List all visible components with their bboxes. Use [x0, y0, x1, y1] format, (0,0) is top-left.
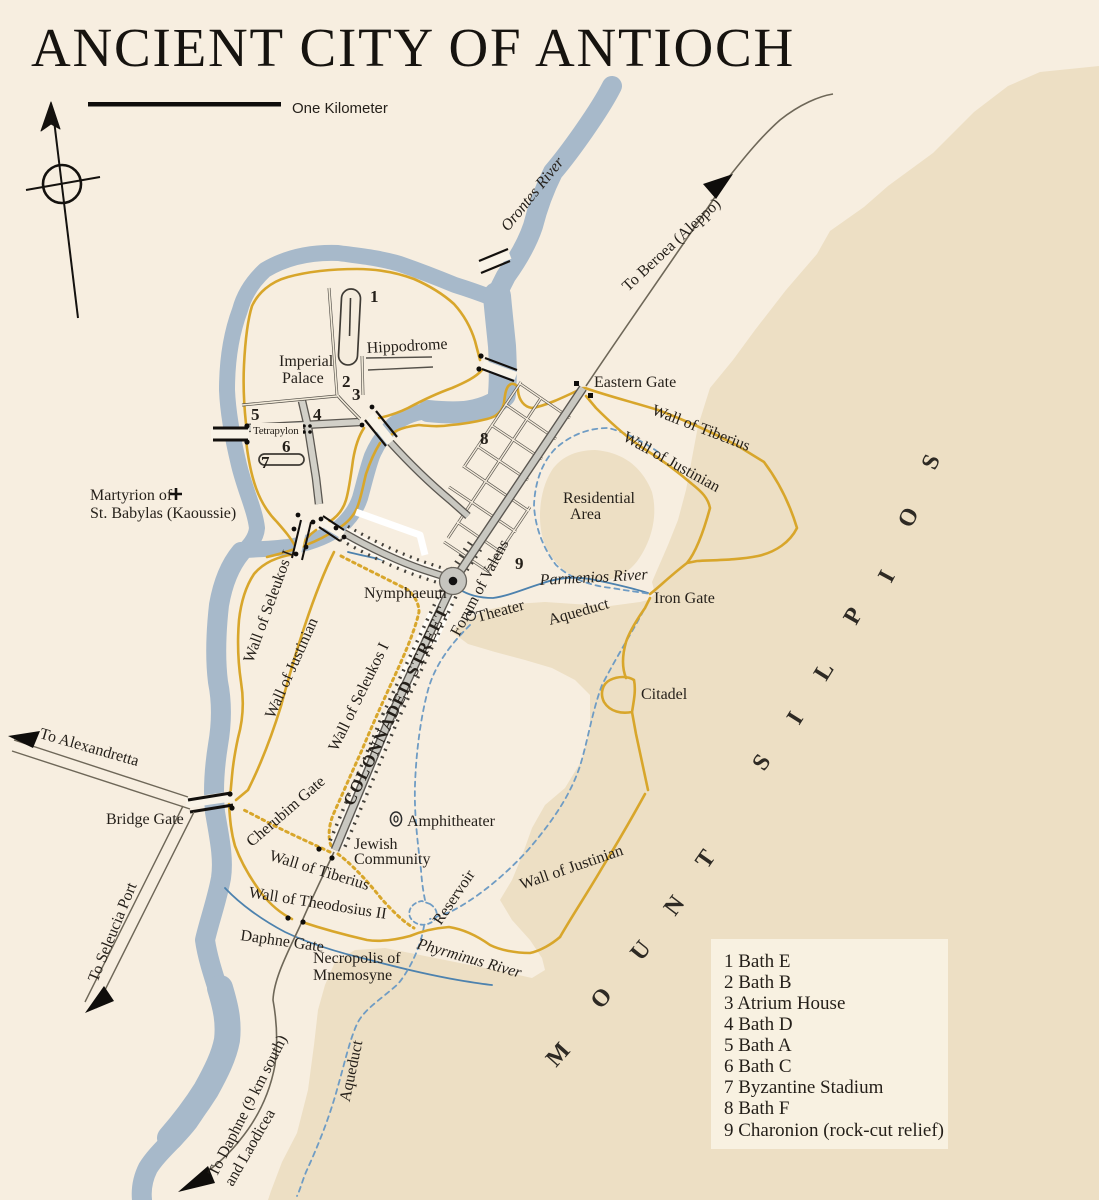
svg-text:ANCIENT CITY OF ANTIOCH: ANCIENT CITY OF ANTIOCH: [31, 17, 795, 78]
svg-text:1 Bath E: 1 Bath E: [724, 951, 791, 972]
svg-text:5 Bath A: 5 Bath A: [724, 1035, 792, 1056]
svg-text:Eastern Gate: Eastern Gate: [594, 374, 676, 391]
svg-text:St. Babylas (Kaoussie): St. Babylas (Kaoussie): [90, 505, 236, 522]
svg-text:7: 7: [261, 453, 270, 472]
svg-text:9 Charonion (rock-cut relief): 9 Charonion (rock-cut relief): [724, 1120, 944, 1141]
svg-text:8 Bath F: 8 Bath F: [724, 1098, 789, 1119]
svg-text:Iron Gate: Iron Gate: [654, 590, 715, 607]
svg-text:Tetrapylon: Tetrapylon: [253, 425, 299, 437]
svg-text:2: 2: [342, 372, 351, 391]
svg-text:6 Bath C: 6 Bath C: [724, 1056, 792, 1077]
svg-text:Area: Area: [570, 506, 601, 523]
svg-text:3 Atrium House: 3 Atrium House: [724, 993, 845, 1014]
svg-text:Community: Community: [354, 851, 430, 868]
svg-text:Martyrion of: Martyrion of: [90, 487, 173, 504]
svg-text:Palace: Palace: [282, 370, 324, 387]
svg-text:Nymphaeum: Nymphaeum: [364, 585, 447, 602]
svg-text:6: 6: [282, 437, 291, 456]
svg-text:Mnemosyne: Mnemosyne: [313, 967, 392, 984]
svg-text:Necropolis of: Necropolis of: [313, 950, 401, 967]
svg-text:3: 3: [352, 385, 361, 404]
svg-text:One Kilometer: One Kilometer: [292, 100, 388, 117]
svg-text:Amphitheater: Amphitheater: [407, 813, 496, 830]
svg-text:1: 1: [370, 287, 379, 306]
svg-text:Residential: Residential: [563, 490, 636, 507]
svg-text:Citadel: Citadel: [641, 686, 688, 703]
svg-text:4 Bath D: 4 Bath D: [724, 1014, 793, 1035]
svg-text:5: 5: [251, 405, 260, 424]
svg-text:7 Byzantine Stadium: 7 Byzantine Stadium: [724, 1077, 884, 1098]
svg-text:2 Bath B: 2 Bath B: [724, 972, 792, 993]
svg-text:8: 8: [480, 429, 489, 448]
svg-text:Imperial: Imperial: [279, 353, 334, 370]
svg-text:4: 4: [313, 405, 322, 424]
svg-text:Bridge Gate: Bridge Gate: [106, 811, 184, 828]
svg-text:9: 9: [515, 554, 524, 573]
